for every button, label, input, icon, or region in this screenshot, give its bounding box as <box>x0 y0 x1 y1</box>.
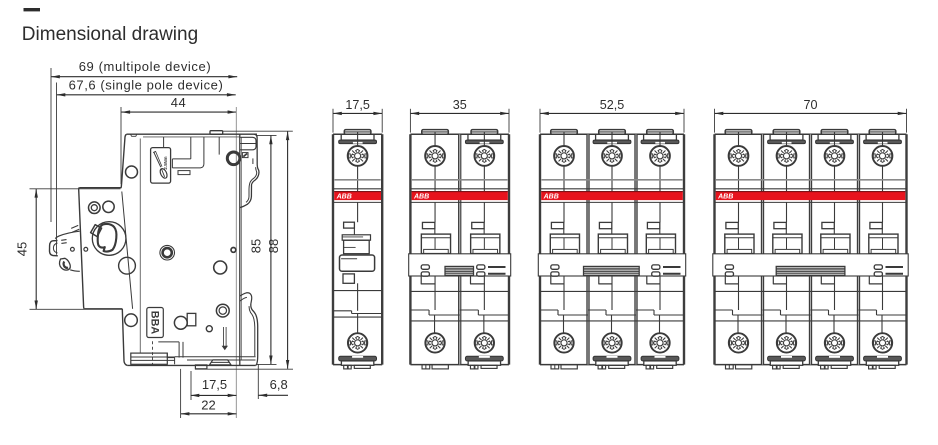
svg-text:ABB: ABB <box>336 194 352 201</box>
svg-text:17,5: 17,5 <box>202 377 227 392</box>
svg-text:44: 44 <box>171 95 186 110</box>
svg-text:70: 70 <box>803 98 817 112</box>
svg-text:45: 45 <box>15 242 30 256</box>
svg-text:ABB: ABB <box>413 194 429 201</box>
svg-text:35: 35 <box>453 98 467 112</box>
svg-text:85: 85 <box>249 239 264 253</box>
svg-text:67,6 (single pole device): 67,6 (single pole device) <box>69 77 224 92</box>
svg-text:ABB: ABB <box>717 194 733 201</box>
svg-text:BBA: BBA <box>148 311 160 335</box>
svg-text:69 (multipole device): 69 (multipole device) <box>79 59 212 74</box>
svg-text:Dimensional drawing: Dimensional drawing <box>22 24 198 45</box>
svg-text:22: 22 <box>201 398 215 413</box>
svg-text:17,5: 17,5 <box>345 98 370 112</box>
svg-text:ABB: ABB <box>543 194 559 201</box>
svg-text:52,5: 52,5 <box>600 98 625 112</box>
svg-text:2.5Nm: 2.5Nm <box>163 156 168 169</box>
svg-text:6,8: 6,8 <box>270 377 288 392</box>
svg-text:88: 88 <box>266 239 281 253</box>
